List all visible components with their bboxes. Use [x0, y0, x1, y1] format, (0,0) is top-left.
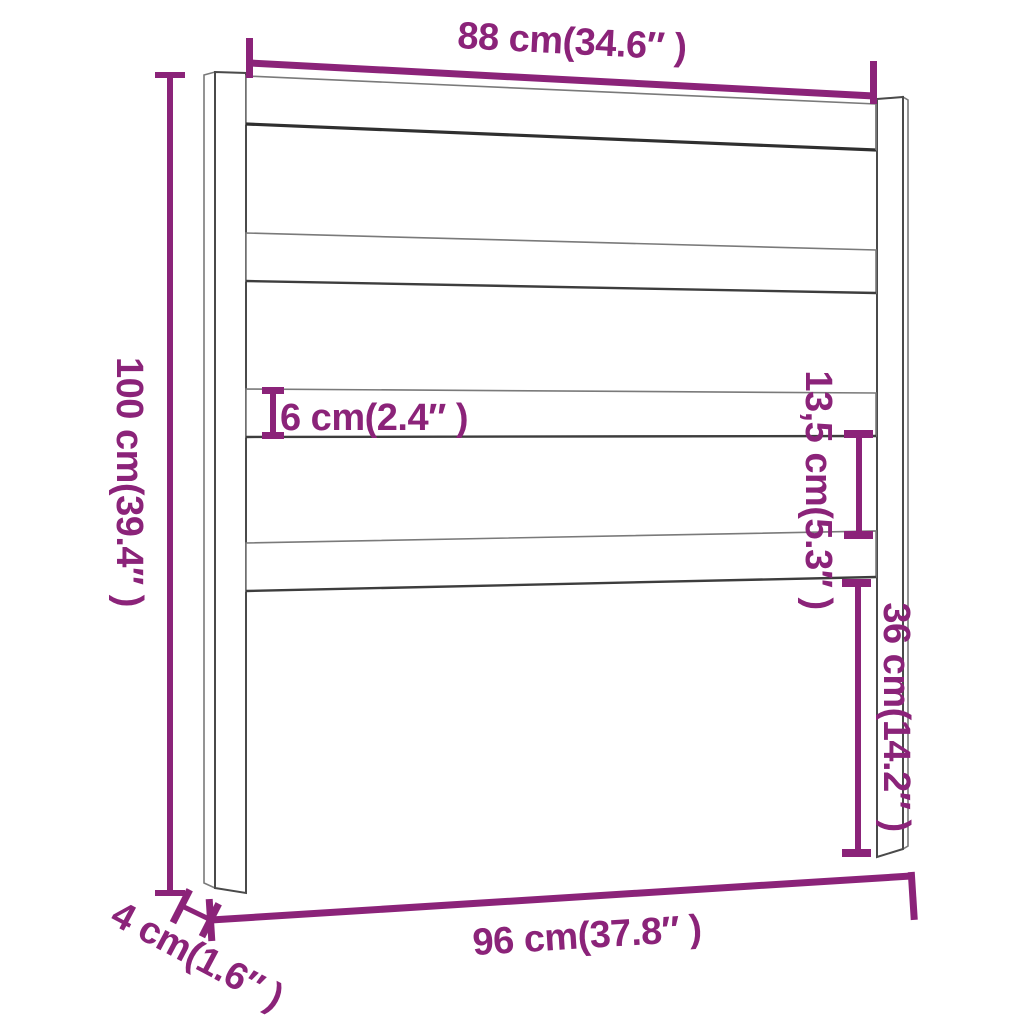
- dim-label-slat-height: 6 cm(2.4″ ): [280, 399, 468, 437]
- dim-label-lower-height: 36 cm(14.2″ ): [877, 602, 915, 831]
- dim-label-height: 100 cm(39.4″ ): [110, 357, 148, 607]
- dim-label-slat-gap: 13,5 cm(5.3″ ): [799, 370, 837, 609]
- dim-height-line: [155, 72, 185, 896]
- dim-lower-height-line: [842, 579, 871, 857]
- slat-2: [246, 233, 876, 293]
- left-post: [204, 72, 246, 893]
- headboard-drawing: [0, 0, 1024, 1024]
- slat-4: [246, 531, 876, 591]
- dimension-diagram: 88 cm(34.6″ ) 100 cm(39.4″ ) 6 cm(2.4″ )…: [0, 0, 1024, 1024]
- top-rail: [246, 76, 876, 150]
- dim-slat-gap-line: [844, 430, 873, 539]
